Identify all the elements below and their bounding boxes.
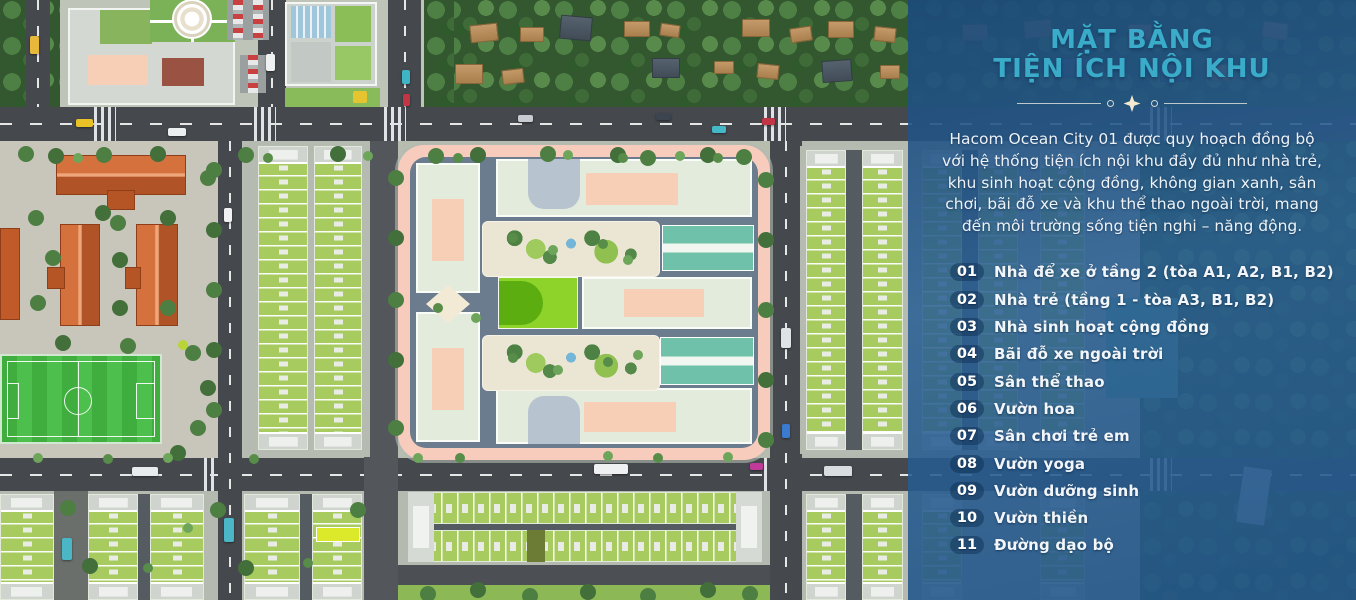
alley [300,494,312,600]
divider-ring-icon [1107,100,1114,107]
villa-roof [714,61,734,74]
amenity-number: 04 [950,345,984,363]
amenity-item: 03 Nhà sinh hoạt cộng đồng [950,318,1326,337]
traditional-building-west [60,224,100,326]
vehicle-bus [594,464,628,474]
amenity-item: 09 Vườn dưỡng sinh [950,481,1326,500]
amenity-label: Nhà sinh hoạt cộng đồng [994,318,1210,336]
roof-gray [291,42,331,82]
amenity-label: Vườn hoa [994,400,1075,418]
villa-roof-dark [559,15,593,42]
panel-title-line2: TIỆN ÍCH NỘI KHU [993,54,1270,84]
school-building [285,2,377,86]
amenity-label: Sân chơi trẻ em [994,427,1130,445]
villa-roof-dark [652,58,680,78]
tower-a3 [582,277,752,329]
entrance-pavilion-south [528,396,580,444]
ornamental-divider [1017,95,1247,112]
amenity-item: 11 Đường dạo bộ [950,536,1326,555]
divider-ring-icon [1151,100,1158,107]
tree-cluster-small [0,0,16,16]
vehicle-truck [824,466,852,476]
vehicle-van [266,54,275,71]
traditional-building-main [56,155,186,195]
villa-roof [624,21,650,37]
school-garden [285,88,380,107]
shophouse-column [312,494,362,600]
roof-lawn-2 [335,46,371,80]
tower-a2 [416,312,480,442]
traditional-building-east [136,224,178,326]
shophouse-column [88,494,138,600]
villa-roof [756,63,779,80]
shophouse-column [862,494,903,600]
vehicle-car [782,424,790,438]
vehicle-bus [224,518,234,542]
amenity-label: Vườn dưỡng sinh [994,482,1139,500]
shophouse-column [806,494,846,600]
amenity-item: 05 Sân thể thao [950,372,1326,391]
villa-roof [469,23,499,44]
landscaped-courtyard-north [482,221,660,277]
traditional-building-edge [0,228,20,320]
plaza-lawn [150,0,235,42]
divider-line [1017,103,1101,104]
entrance-pavilion-north [528,159,580,209]
amenities-list: 01 Nhà để xe ở tầng 2 (tòa A1, A2, B1, B… [938,263,1326,555]
roof-lawn-1 [335,6,371,42]
amenity-number: 07 [950,427,984,445]
amenity-label: Bãi đỗ xe ngoài trời [994,345,1163,363]
vehicle-car [518,115,533,122]
plaza-mandala [172,0,212,39]
vehicle-bus [30,36,39,54]
sports-court-north [662,225,754,271]
shophouse-column [862,150,903,450]
amenity-item: 04 Bãi đỗ xe ngoài trời [950,345,1326,364]
amenity-item: 10 Vườn thiền [950,509,1326,528]
flower-bed-icon [353,91,367,103]
road-vert-east [770,141,802,600]
shophouse-column [806,150,846,450]
amenity-label: Vườn thiền [994,509,1088,527]
amenity-item: 02 Nhà trẻ (tầng 1 - tòa A3, B1, B2) [950,290,1326,309]
landscaped-courtyard-south [482,335,660,391]
amenity-number: 08 [950,455,984,473]
villa-roof [873,26,896,43]
vehicle-car [712,126,726,133]
amenity-item: 08 Vườn yoga [950,454,1326,473]
vehicle-car [403,94,410,106]
vehicle-bus [62,538,72,560]
amenity-number: 01 [950,263,984,281]
villa-roof [880,65,900,79]
vehicle-truck [781,328,791,348]
civic-roof-salmon [88,55,148,85]
central-lawn [498,277,578,329]
parking-lot-north [227,0,269,40]
soccer-field [0,354,162,444]
shophouse-column [258,146,308,450]
amenity-number: 09 [950,482,984,500]
vehicle-car [762,118,775,125]
alley [138,494,150,600]
amenity-item: 07 Sân chơi trẻ em [950,427,1326,446]
villa-roof [501,68,525,86]
villa-roof [742,19,770,37]
back-alley-south [398,565,770,585]
vehicle-car [402,70,410,84]
tower-a1 [416,163,480,293]
alley [846,494,862,600]
intro-paragraph: Hacom Ocean City 01 được quy hoạch đồng … [940,129,1324,238]
screenshot-root: MẶT BẰNG TIỆN ÍCH NỘI KHU Hacom Ocean Ci… [0,0,1356,600]
vehicle-car [224,208,232,222]
amenity-number: 05 [950,373,984,391]
glass-roof [291,6,331,38]
villa-roof [828,21,854,38]
amenity-number: 10 [950,509,984,527]
amenity-label: Nhà để xe ở tầng 2 (tòa A1, A2, B1, B2) [994,263,1334,281]
amenity-label: Nhà trẻ (tầng 1 - tòa A3, B1, B2) [994,291,1274,309]
amenity-item: 01 Nhà để xe ở tầng 2 (tòa A1, A2, B1, B… [950,263,1326,282]
villa-roof-dark [821,59,852,83]
civic-courtyard [100,10,152,44]
villa-roof [520,27,544,42]
amenity-label: Đường dạo bộ [994,536,1114,554]
shophouse-block-sw [0,494,54,600]
highlighted-lot [316,527,360,542]
divider-line [1164,103,1248,104]
shophouse-row-block [408,492,762,562]
sports-court-south [660,337,754,385]
amenity-number: 03 [950,318,984,336]
apartment-complex [398,145,770,460]
alley [846,150,862,450]
amenity-label: Sân thể thao [994,373,1105,391]
shophouse-column [244,494,300,600]
vehicle-car [750,463,763,470]
amenity-label: Vườn yoga [994,455,1085,473]
lawn-south [398,585,770,600]
shophouse-column [314,146,362,450]
amenity-number: 02 [950,291,984,309]
civic-roof-maroon [162,58,204,86]
vehicle-bus [132,467,158,476]
villa-roof [789,26,813,44]
amenity-number: 06 [950,400,984,418]
vehicle-van [168,128,186,136]
amenity-item: 06 Vườn hoa [950,399,1326,418]
forest-patch-mid [424,0,454,112]
sparkle-star-icon [1124,95,1141,112]
villa-roof [659,23,681,39]
panel-title-line1: MẶT BẰNG [1050,25,1214,55]
amenities-panel: MẶT BẰNG TIỆN ÍCH NỘI KHU Hacom Ocean Ci… [908,0,1356,600]
vehicle-taxi [76,119,93,127]
panel-title: MẶT BẰNG TIỆN ÍCH NỘI KHU [938,26,1326,84]
vehicle-car [656,113,671,120]
parking-lot-side [240,55,266,93]
villa-roof [455,64,483,84]
complex-podium-deck [410,157,758,448]
road-vert-c [388,0,421,107]
amenity-number: 11 [950,536,984,554]
shophouse-column [150,494,204,600]
